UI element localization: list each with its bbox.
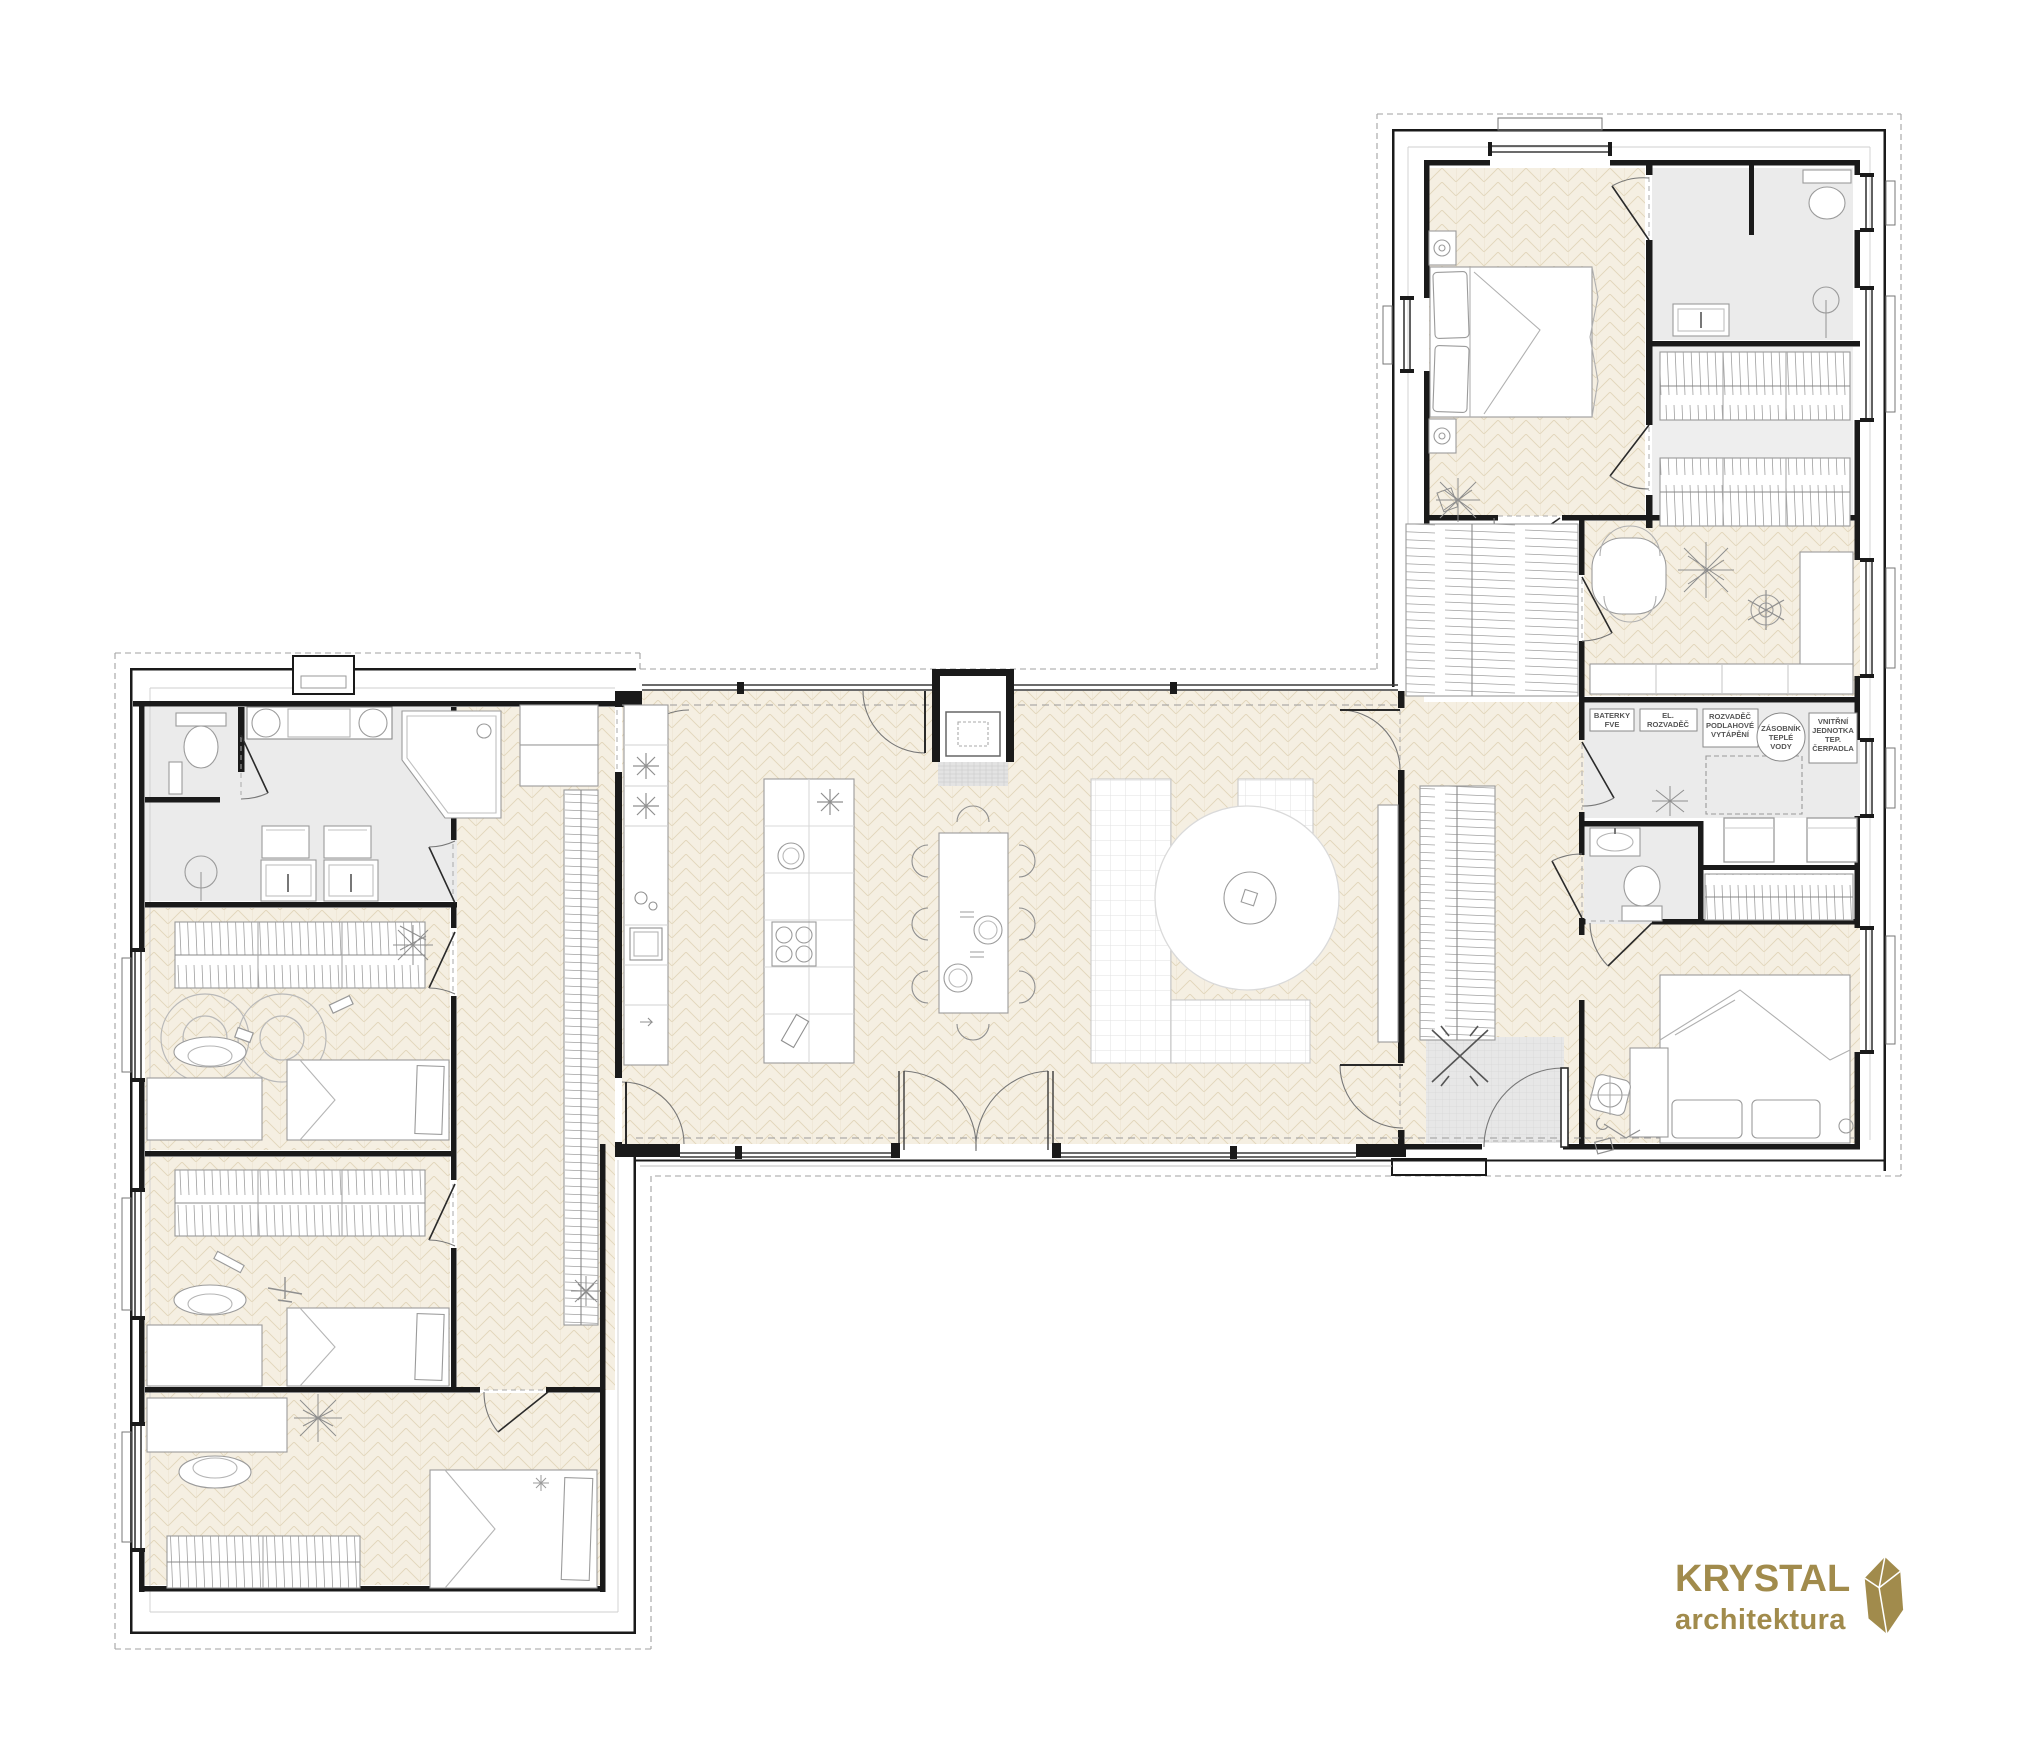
svg-text:ZÁSOBNÍK: ZÁSOBNÍK bbox=[1761, 724, 1801, 733]
svg-text:EL.: EL. bbox=[1662, 711, 1674, 720]
svg-text:ROZVADĚČ: ROZVADĚČ bbox=[1709, 712, 1752, 721]
svg-text:VODY: VODY bbox=[1770, 742, 1792, 751]
svg-text:ROZVADĚČ: ROZVADĚČ bbox=[1647, 720, 1690, 729]
svg-text:TEPLÉ: TEPLÉ bbox=[1769, 733, 1793, 742]
svg-text:BATERKY: BATERKY bbox=[1594, 711, 1630, 720]
svg-text:PODLAHOVÉ: PODLAHOVÉ bbox=[1706, 721, 1754, 730]
svg-text:ČERPADLA: ČERPADLA bbox=[1812, 744, 1854, 753]
svg-text:VYTÁPĚNÍ: VYTÁPĚNÍ bbox=[1711, 730, 1750, 739]
svg-text:VNITŘNÍ: VNITŘNÍ bbox=[1818, 717, 1849, 726]
svg-text:JEDNOTKA: JEDNOTKA bbox=[1812, 726, 1854, 735]
svg-text:TEP.: TEP. bbox=[1825, 735, 1841, 744]
svg-text:FVE: FVE bbox=[1605, 720, 1620, 729]
svg-text:architektura: architektura bbox=[1675, 1604, 1846, 1636]
svg-text:KRYSTAL: KRYSTAL bbox=[1675, 1558, 1850, 1600]
